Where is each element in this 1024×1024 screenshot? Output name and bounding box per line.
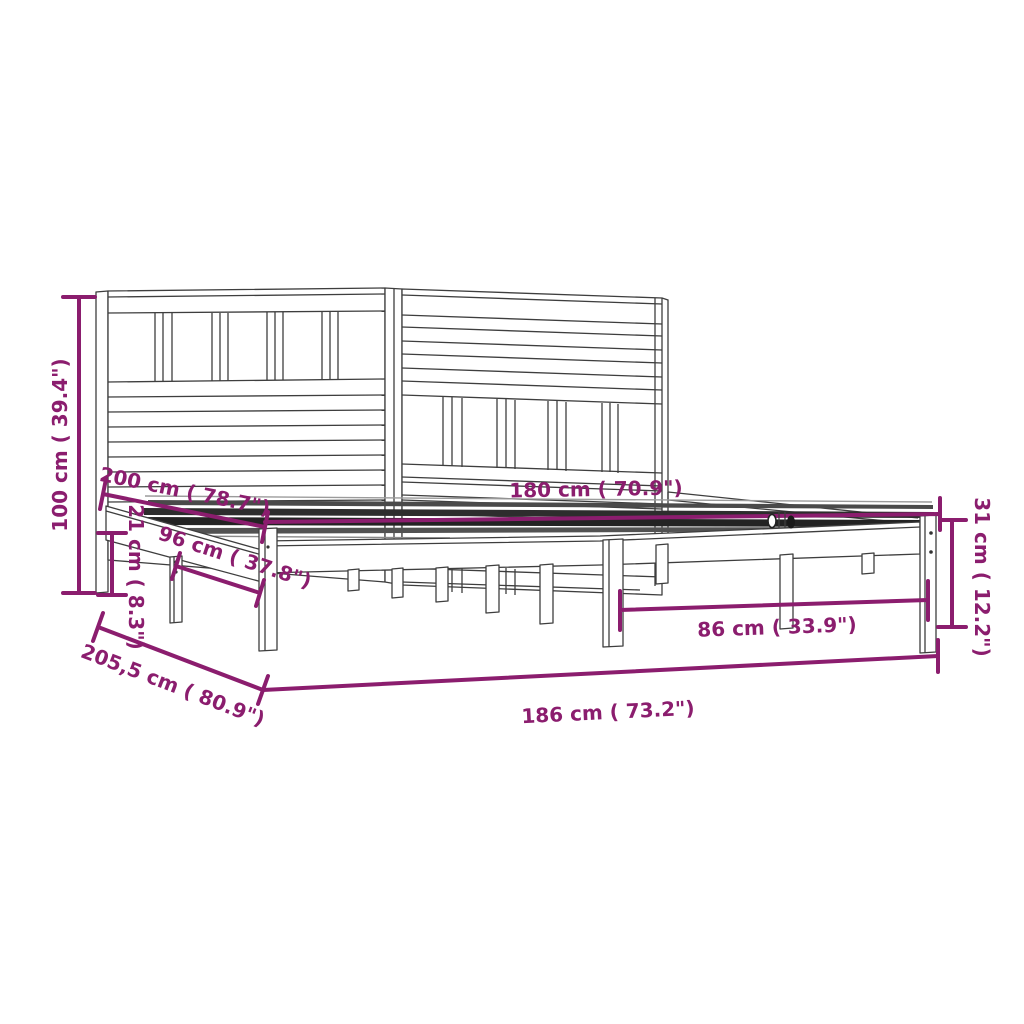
rear-leg	[436, 567, 448, 602]
bolt-ring	[768, 515, 776, 528]
dimension-diagram: 100 cm ( 39.4") 200 cm ( 78.7") 180 cm (…	[0, 0, 1024, 1024]
dimension-total-width-label: 186 cm ( 73.2")	[521, 696, 695, 728]
screw-dot	[266, 545, 269, 548]
bed-frame-drawing	[96, 288, 936, 653]
rear-leg	[392, 568, 403, 598]
dimension-foot-end-height: 31 cm ( 12.2")	[938, 497, 994, 656]
dimension-side-rail-height-label: 21 cm ( 8.3")	[124, 504, 148, 650]
dimension-total-width: 186 cm ( 73.2")	[263, 640, 938, 728]
dimension-foot-end-height-label: 31 cm ( 12.2")	[970, 497, 994, 656]
dimension-leg-span-width: 86 cm ( 33.9")	[620, 581, 928, 642]
dimension-total-height-label: 100 cm ( 39.4")	[48, 358, 72, 531]
rear-leg	[348, 569, 359, 591]
dimension-mattress-width-label: 180 cm ( 70.9")	[509, 475, 683, 502]
dimension-total-length-label: 205,5 cm ( 80.9")	[78, 639, 269, 731]
rear-leg	[862, 553, 874, 574]
dimension-total-height: 100 cm ( 39.4")	[48, 297, 95, 593]
rear-leg	[540, 564, 553, 624]
dimension-total-length: 205,5 cm ( 80.9")	[78, 613, 269, 731]
headboard-left-stile	[96, 291, 108, 593]
diagram-canvas: 100 cm ( 39.4") 200 cm ( 78.7") 180 cm (…	[0, 0, 1024, 1024]
rear-leg	[486, 565, 499, 613]
bolt-head	[787, 516, 795, 529]
rear-leg	[656, 544, 668, 584]
dimension-leg-span-width-label: 86 cm ( 33.9")	[697, 612, 857, 642]
